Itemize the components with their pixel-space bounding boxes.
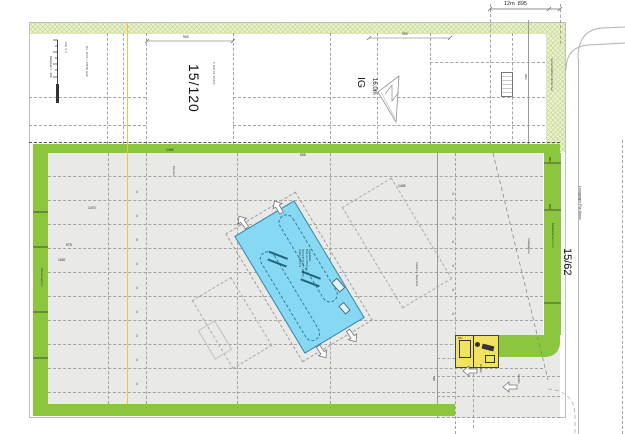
dim-label: 1470 — [88, 207, 96, 210]
stall-count-column: 4 4 4 4 4 4 — [452, 182, 454, 326]
note-label: Bestandsgrenze — [39, 268, 42, 287]
arrow-icon — [463, 366, 477, 376]
dim-label: 900 — [183, 36, 189, 39]
label-parcel-right: 15/62 — [561, 248, 572, 276]
dim-label: 885 — [548, 157, 551, 162]
dim-label: 595 — [432, 376, 435, 381]
label-zone-code: IG — [356, 77, 367, 88]
note-label: Zufahrt lt. Bescheid — [415, 262, 418, 286]
arrow-icon — [344, 327, 360, 344]
scale-bar — [53, 40, 59, 103]
note-label: Baufluchtlinie 3,0 m — [551, 223, 554, 247]
note-label: Einfahrt — [478, 364, 481, 373]
arrow-icon — [314, 343, 330, 360]
road-curve — [578, 27, 625, 58]
stall-count-column: 4 4 5 4 4 4 3 4 4 — [136, 180, 138, 396]
arrow-icon — [270, 198, 286, 215]
note-label: Verkehrsfläche öffentl. Gut — [550, 58, 553, 91]
label-zone-height: 16,0m — [371, 78, 377, 95]
north-arrow-icon — [378, 76, 399, 122]
note-label: Schleppkurve — [526, 238, 529, 254]
arrow-icon — [235, 213, 251, 230]
dim-label: 1405 — [398, 185, 406, 188]
note-label: lt. GST-Nr. 15/120 — [212, 62, 215, 84]
arrow-icon — [503, 382, 517, 392]
note-label: Bestand — [171, 166, 174, 176]
site-plan-canvas: Lagerhalle BGF ca. 2.870 m² OK FFB ±0,00… — [0, 0, 625, 434]
dim-label: 605 — [300, 154, 306, 157]
label-scale-caption: Maßstab 1 : 200 — [49, 56, 52, 78]
dim-label: 975 — [66, 244, 72, 247]
label-parcel-upper: 15/120 — [187, 64, 201, 113]
road-curve — [548, 389, 575, 434]
label-scale-ticks: 10m 5 0 — [63, 42, 66, 53]
dim-label: 1160 — [58, 259, 65, 262]
line-overlay — [0, 0, 625, 434]
sight-line — [493, 153, 548, 380]
dim-label: 20m — [524, 74, 527, 80]
label-street-name: Leonganger-Flur-Gasse — [578, 186, 581, 220]
note-label: Niv. ±0,00 = 428,50 müA — [85, 46, 88, 77]
dim-label: 900 — [402, 33, 408, 36]
road-curve — [566, 43, 625, 70]
label-top-dimension: 12m 895 — [504, 2, 527, 8]
note-label: Ausfahrt — [516, 374, 519, 384]
note-label: WC — [458, 338, 462, 341]
dim-label: 1405 — [166, 149, 174, 152]
flow-arrows — [235, 198, 517, 392]
dim-label: 500 — [548, 204, 551, 209]
